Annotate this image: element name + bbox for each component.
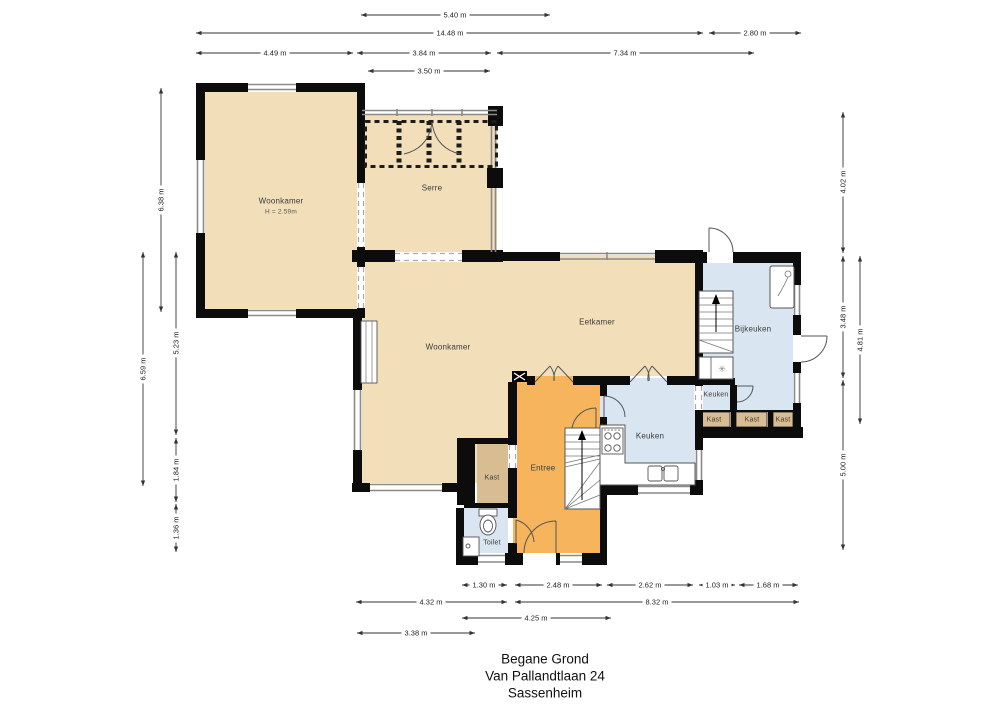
radiator-niche — [361, 321, 377, 383]
room-label-eetkamer: Eetkamer — [579, 318, 615, 327]
stairs-bijkeuken — [699, 291, 733, 353]
dimension-label: 4.32 m — [417, 598, 446, 607]
room-label-entree: Entree — [531, 464, 556, 473]
door-bijkeuken-buiten — [709, 228, 733, 252]
dimension-label: 4.02 m — [839, 168, 848, 197]
room-label-woonkamer-boven: Woonkamer — [259, 197, 304, 206]
dimension-label: 3.48 m — [839, 303, 848, 332]
dimension-label: 3.38 m — [402, 629, 431, 638]
dimension-label: 7.34 m — [611, 49, 640, 58]
dimension-label: 8.32 m — [643, 598, 672, 607]
room-label-kast-1: Kast — [707, 417, 722, 424]
dimension-label: 1.36 m — [172, 514, 181, 543]
room-kast-hal — [477, 444, 508, 503]
washer-icon: ✳ — [718, 364, 726, 374]
dimension-label: 4.81 m — [856, 326, 865, 355]
room-label-keuken-hoek: Keuken — [704, 392, 729, 399]
room-label-kast-3: Kast — [776, 417, 791, 424]
room-height-note: H = 2.59m — [265, 209, 297, 216]
duct-symbol — [512, 371, 527, 382]
room-label-serre: Serre — [422, 184, 443, 193]
room-label-bijkeuken: Bijkeuken — [735, 325, 772, 334]
dimension-label: 1.03 m — [703, 581, 732, 590]
dimension-label: 5.00 m — [839, 451, 848, 480]
dimension-label: 1.68 m — [754, 581, 783, 590]
plan-title-floor: Begane Grond — [485, 651, 605, 668]
dimension-label: 6.59 m — [139, 355, 148, 384]
door-bijkeuken-rechts — [801, 336, 827, 362]
room-label-woonkamer: Woonkamer — [426, 343, 471, 352]
dimension-label: 5.40 m — [441, 11, 470, 20]
floorplan-page: ✳ — [0, 0, 1000, 707]
room-label-kast-hal: Kast — [485, 475, 500, 482]
dimension-label: 2.80 m — [741, 29, 770, 38]
plan-title-address: Van Pallandtlaan 24 — [485, 668, 605, 685]
plan-title-city: Sassenheim — [485, 685, 605, 702]
shower-unit — [770, 266, 794, 308]
toilet-fixture — [479, 509, 497, 535]
dimension-label: 2.62 m — [636, 581, 665, 590]
dimension-label: 2.48 m — [544, 581, 573, 590]
dimension-label: 1.84 m — [172, 456, 181, 485]
washing-machine: ✳ — [699, 357, 733, 379]
plan-title: Begane Grond Van Pallandtlaan 24 Sassenh… — [485, 651, 605, 702]
room-label-keuken: Keuken — [636, 432, 664, 441]
dimension-label: 14.48 m — [433, 29, 466, 38]
dimension-label: 4.49 m — [261, 49, 290, 58]
dimension-label: 4.25 m — [522, 614, 551, 623]
dimension-label: 1.30 m — [470, 581, 499, 590]
dimension-label: 3.50 m — [415, 67, 444, 76]
dimension-label: 6.38 m — [157, 186, 166, 215]
toilet-sink — [463, 537, 479, 556]
room-label-kast-2: Kast — [745, 417, 760, 424]
dimension-label: 5.23 m — [172, 329, 181, 358]
dimension-label: 3.84 m — [410, 49, 439, 58]
stairs-entree — [565, 428, 600, 509]
room-label-toilet: Toilet — [483, 540, 501, 547]
floorplan-drawing: ✳ — [0, 0, 1000, 707]
